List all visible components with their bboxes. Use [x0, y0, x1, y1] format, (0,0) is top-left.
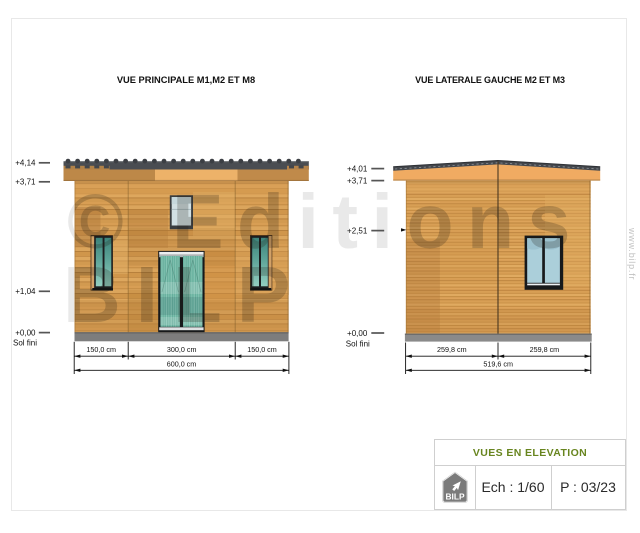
svg-text:Sol fini: Sol fini	[346, 340, 370, 349]
svg-text:519,6 cm: 519,6 cm	[483, 359, 513, 368]
svg-text:Sol fini: Sol fini	[13, 339, 37, 348]
svg-text:+0,00: +0,00	[15, 328, 36, 337]
svg-text:BILP: BILP	[446, 491, 465, 501]
svg-text:259,8 cm: 259,8 cm	[437, 345, 467, 354]
svg-text:300,0 cm: 300,0 cm	[167, 345, 197, 354]
svg-text:+4,14: +4,14	[15, 159, 36, 168]
svg-text:+0,00: +0,00	[347, 329, 368, 338]
svg-text:259,8 cm: 259,8 cm	[530, 345, 560, 354]
svg-text:150,0 cm: 150,0 cm	[86, 345, 116, 354]
svg-text:+2,51: +2,51	[347, 226, 368, 235]
svg-text:600,0 cm: 600,0 cm	[167, 359, 197, 368]
svg-text:+3,71: +3,71	[15, 178, 36, 187]
svg-text:+1,04: +1,04	[15, 287, 36, 296]
svg-text:+3,71: +3,71	[347, 176, 368, 185]
svg-text:+4,01: +4,01	[347, 164, 368, 173]
svg-text:150,0 cm: 150,0 cm	[247, 345, 277, 354]
